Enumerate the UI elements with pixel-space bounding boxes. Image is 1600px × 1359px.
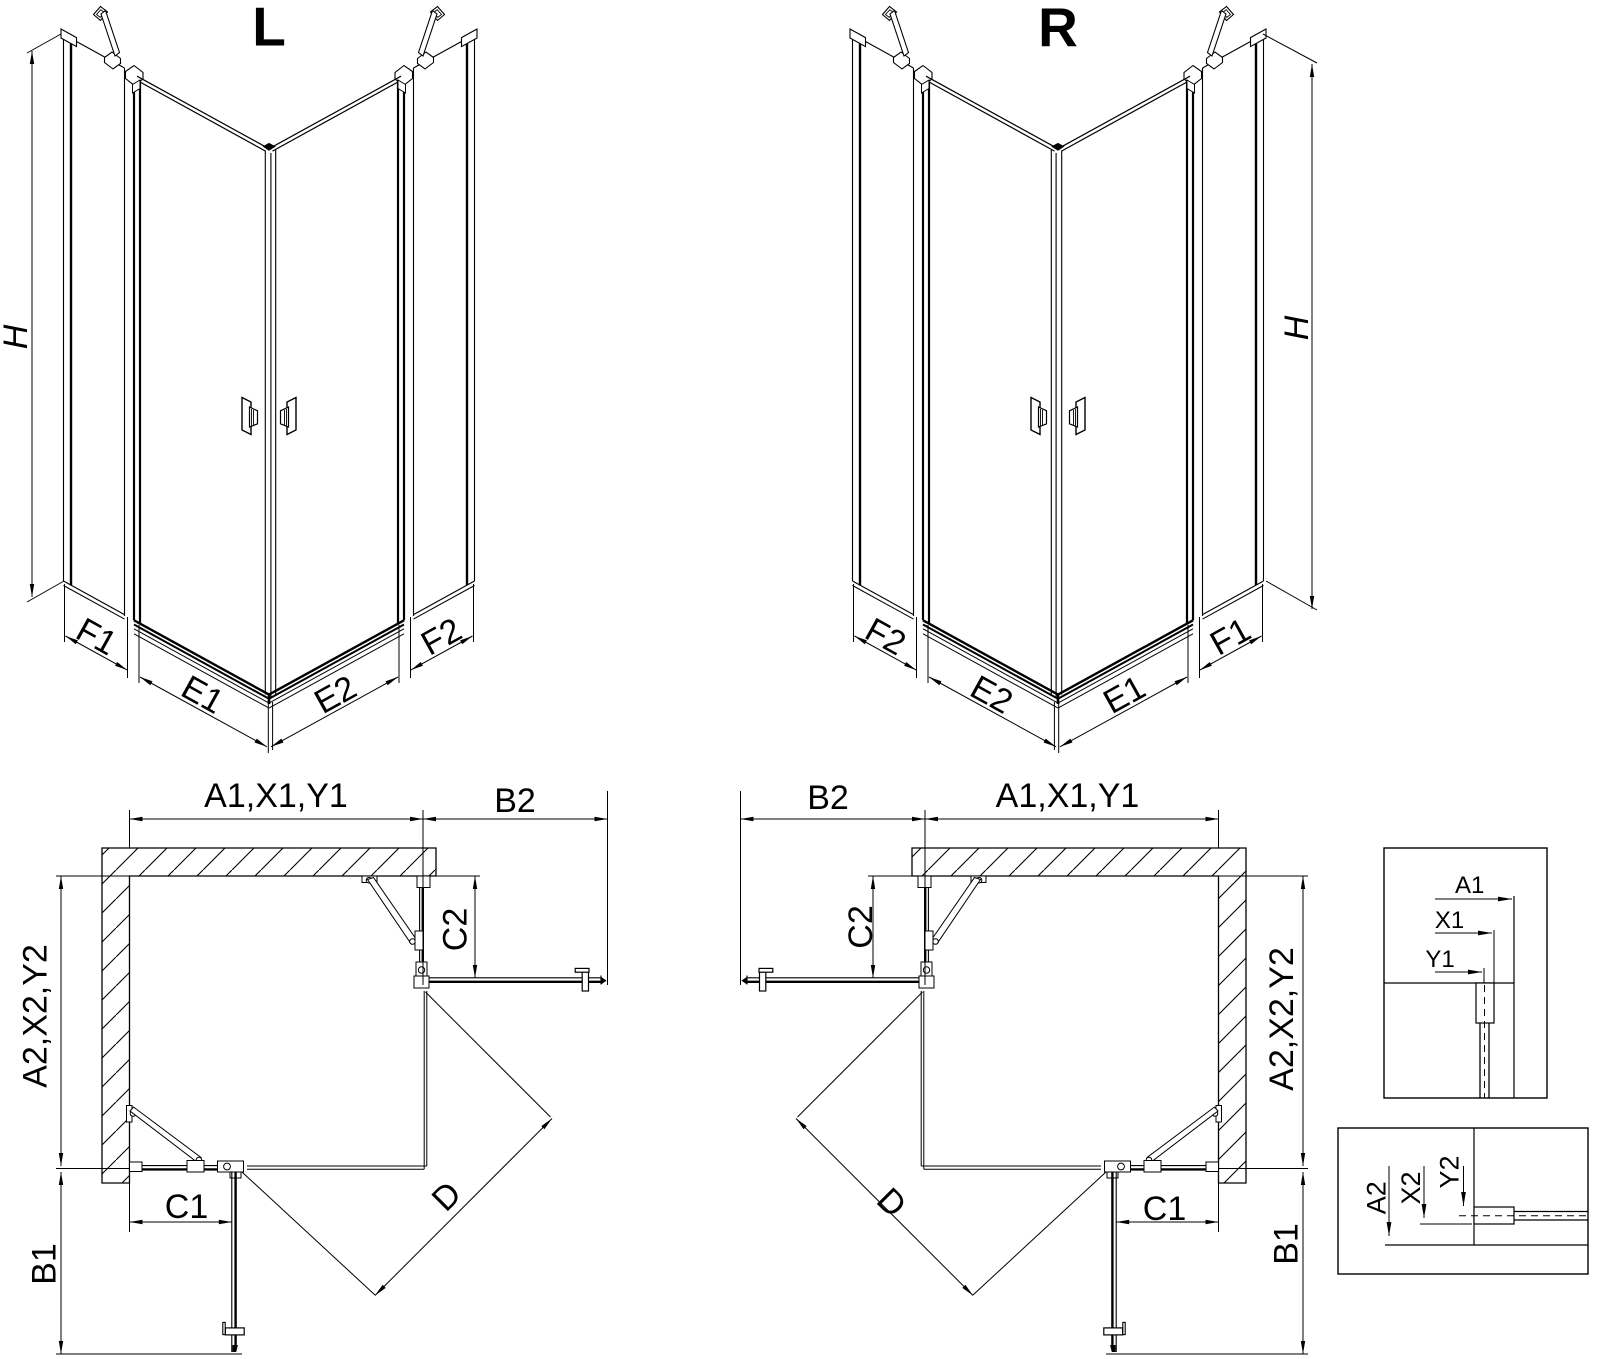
svg-text:X2: X2 — [1396, 1171, 1426, 1204]
svg-text:A2,X2,Y2: A2,X2,Y2 — [1263, 947, 1301, 1091]
svg-text:A1,X1,Y1: A1,X1,Y1 — [996, 777, 1140, 815]
svg-text:B1: B1 — [1268, 1223, 1306, 1265]
svg-text:A2: A2 — [1361, 1181, 1391, 1214]
svg-text:Y2: Y2 — [1435, 1155, 1465, 1188]
svg-text:Y1: Y1 — [1425, 946, 1454, 973]
svg-text:C2: C2 — [437, 908, 475, 951]
svg-text:B2: B2 — [807, 779, 849, 817]
svg-text:X1: X1 — [1435, 907, 1464, 934]
svg-text:C1: C1 — [1143, 1190, 1186, 1228]
svg-text:H: H — [0, 324, 35, 349]
svg-text:B1: B1 — [26, 1243, 64, 1285]
svg-text:A1,X1,Y1: A1,X1,Y1 — [204, 777, 348, 815]
svg-text:C2: C2 — [842, 905, 880, 948]
svg-text:C1: C1 — [165, 1188, 208, 1226]
svg-text:B2: B2 — [494, 782, 536, 820]
svg-text:L: L — [252, 0, 286, 58]
svg-text:H: H — [1278, 315, 1316, 340]
svg-text:A1: A1 — [1455, 872, 1484, 899]
svg-text:A2,X2,Y2: A2,X2,Y2 — [17, 944, 55, 1088]
svg-text:R: R — [1038, 0, 1078, 59]
